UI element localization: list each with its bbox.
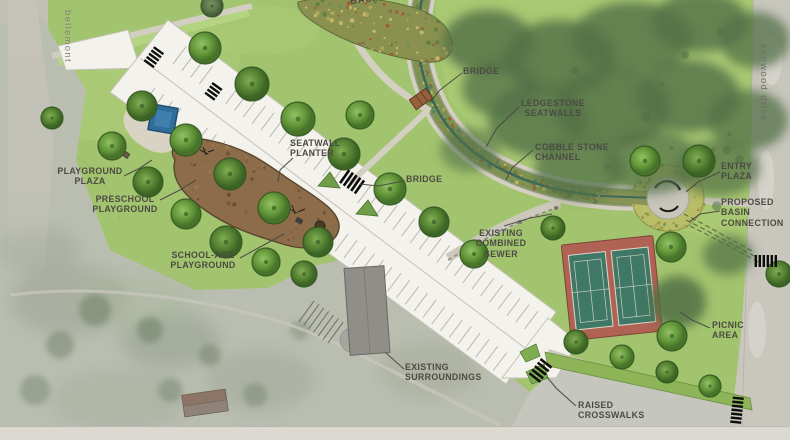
site-plan-canvas: [0, 0, 790, 440]
tennis-courts: [561, 235, 663, 340]
site-plan: bellemont kenwood drive BASIN BRIDGE LED…: [0, 0, 790, 440]
